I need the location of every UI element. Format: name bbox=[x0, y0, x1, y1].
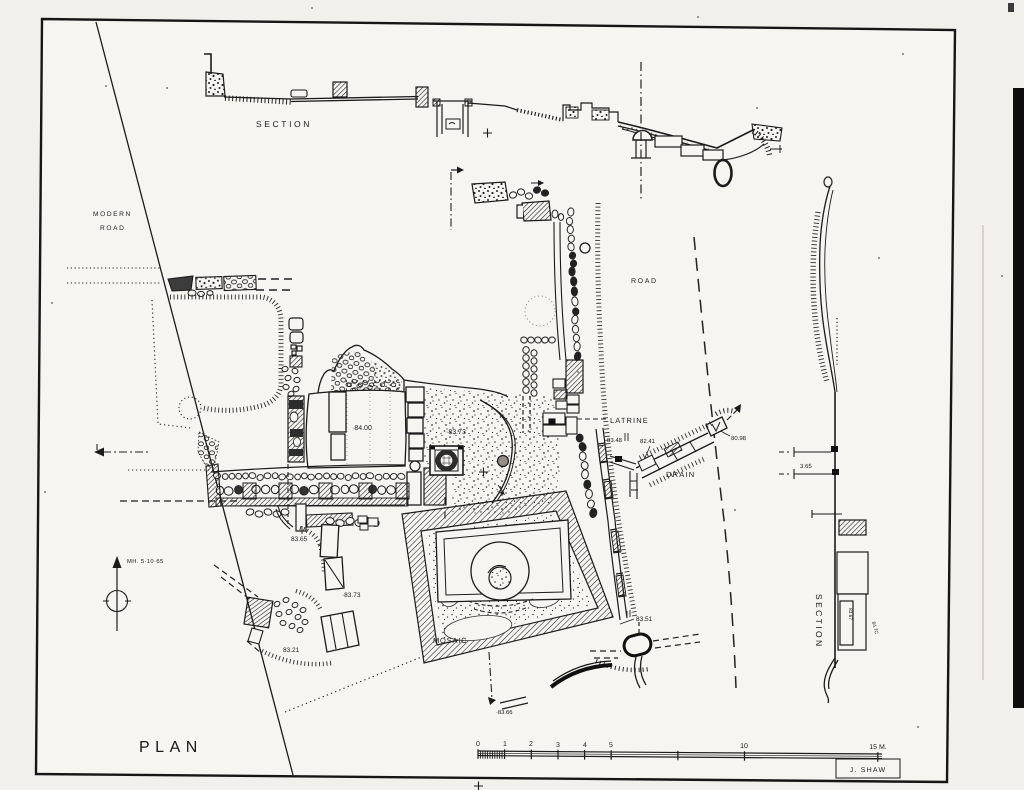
svg-text:15 M.: 15 M. bbox=[869, 744, 887, 751]
svg-text:·83.73: ·83.73 bbox=[342, 592, 361, 599]
svg-text:83.48: 83.48 bbox=[607, 437, 623, 444]
svg-text:PLAN: PLAN bbox=[139, 739, 203, 756]
svg-text:1: 1 bbox=[503, 741, 507, 748]
svg-text:83.21: 83.21 bbox=[283, 647, 300, 654]
svg-text:·83.66: ·83.66 bbox=[496, 709, 512, 716]
svg-text:·83.73: ·83.73 bbox=[446, 429, 466, 436]
svg-text:ROAD: ROAD bbox=[100, 225, 125, 232]
svg-text:82.41: 82.41 bbox=[640, 438, 656, 445]
svg-text:DRAIN: DRAIN bbox=[666, 470, 695, 479]
svg-text:·84.00: ·84.00 bbox=[352, 425, 372, 432]
svg-text:3: 3 bbox=[556, 742, 560, 749]
svg-text:SECTION: SECTION bbox=[256, 119, 312, 129]
svg-text:83.65: 83.65 bbox=[291, 536, 308, 543]
svg-text:LATRINE: LATRINE bbox=[610, 416, 649, 425]
svg-text:10: 10 bbox=[740, 743, 748, 750]
svg-text:2: 2 bbox=[529, 741, 533, 748]
svg-text:4: 4 bbox=[583, 742, 587, 749]
svg-text:0: 0 bbox=[476, 741, 480, 748]
svg-text:83.67: 83.67 bbox=[847, 608, 853, 620]
svg-text:MH. 5·10·65: MH. 5·10·65 bbox=[127, 558, 164, 565]
svg-text:83.51: 83.51 bbox=[636, 616, 653, 623]
svg-text:3.65: 3.65 bbox=[800, 463, 812, 470]
svg-text:ROAD: ROAD bbox=[631, 278, 658, 285]
svg-text:MOSAIC: MOSAIC bbox=[433, 636, 467, 645]
svg-text:5: 5 bbox=[609, 742, 613, 749]
svg-text:80.98: 80.98 bbox=[731, 435, 747, 442]
svg-text:J. SHAW: J. SHAW bbox=[850, 767, 887, 774]
svg-text:MODERN: MODERN bbox=[93, 211, 132, 218]
svg-text:SECTION: SECTION bbox=[814, 594, 824, 649]
